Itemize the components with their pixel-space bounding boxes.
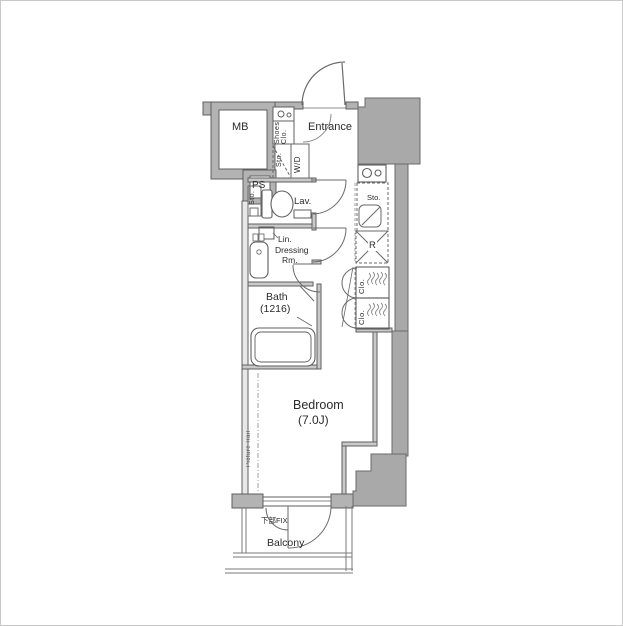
bedroom-window <box>263 497 331 506</box>
label-picture-rail: Picture Rail <box>246 389 252 467</box>
label-closet-upper: Clo. <box>358 272 366 294</box>
bedroom-door-arc <box>293 264 320 292</box>
room-label-bath: Bath <box>266 292 288 303</box>
label-closet-lower: Clo. <box>358 303 366 325</box>
label-refrigerator: R <box>368 241 377 251</box>
floor-plan-linework <box>1 1 623 626</box>
room-label-mb: MB <box>232 122 249 133</box>
room-label-lavatory: Lav. <box>294 197 311 207</box>
washbasin-icon <box>250 234 268 278</box>
room-label-shoes-closet: Shoes Clo. <box>274 122 288 144</box>
label-linen: Lin. <box>278 235 292 244</box>
room-label-entrance: Entrance <box>308 122 352 133</box>
lavatory-counter <box>294 210 311 218</box>
label-washer-dryer: W/D <box>294 149 302 173</box>
label-toilet-storage: Sto. <box>249 189 256 205</box>
room-label-dressing-rm: Rm. <box>282 256 298 265</box>
closet-bifold-doors <box>342 267 357 329</box>
room-label-bedroom: Bedroom <box>293 399 344 412</box>
dressing-door-arc <box>313 228 346 262</box>
toilet-icon <box>262 190 293 218</box>
label-bath-size: (1216) <box>260 304 290 315</box>
lavatory-door-arc <box>313 180 346 214</box>
label-bedroom-size: (7.0J) <box>298 414 329 426</box>
bath-door-line <box>297 286 314 326</box>
label-hall-storage: Sto. <box>276 151 283 167</box>
room-label-balcony: Balcony <box>267 538 304 549</box>
floor-plan: MB PS Shoes Clo. Entrance Sto. W/D Sto. … <box>0 0 623 626</box>
stove-icon <box>358 165 386 182</box>
bathtub-icon <box>251 328 315 366</box>
room-label-dressing: Dressing <box>275 246 309 255</box>
hanger-icon <box>368 272 387 316</box>
kitchen-sink-box <box>357 183 388 231</box>
entrance-door <box>302 62 346 108</box>
label-window-fix: 下部FIX <box>261 517 288 525</box>
label-kitchen-storage: Sto. <box>367 194 380 202</box>
